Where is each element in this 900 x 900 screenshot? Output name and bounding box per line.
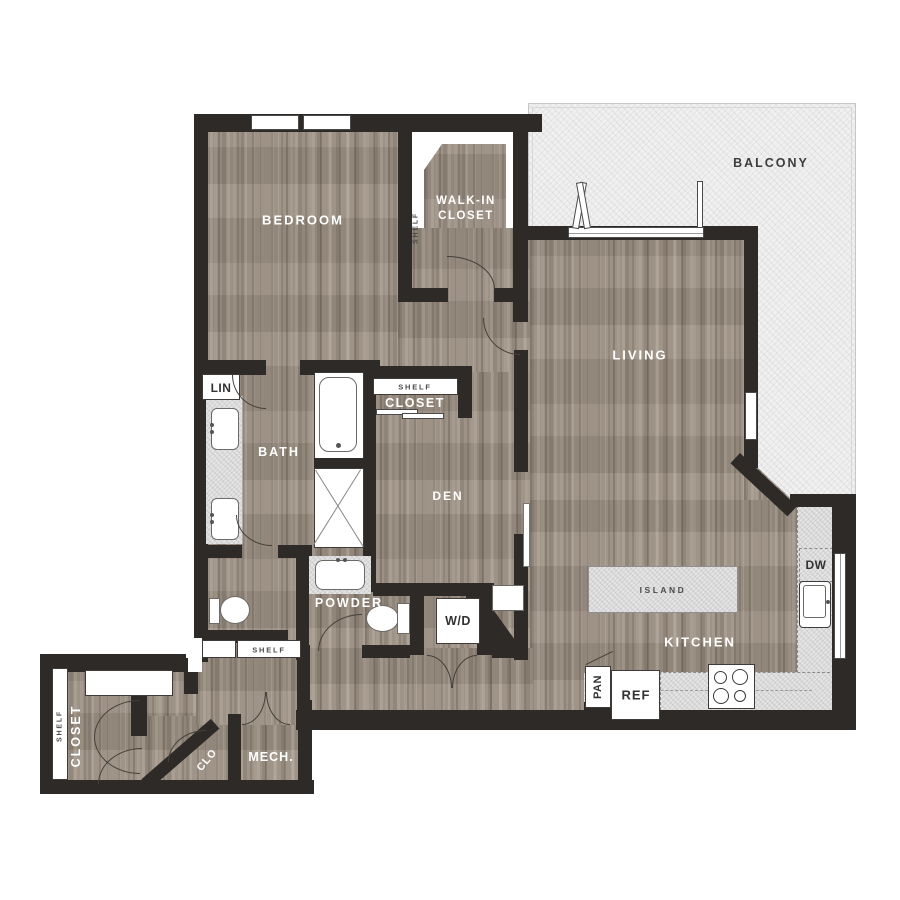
living-label: LIVING [612, 348, 667, 363]
counter-dash-divider [660, 672, 661, 710]
balcony-door-panel-c [697, 181, 703, 228]
powder-sink [315, 560, 365, 590]
wall-walkin-bottom-right [494, 288, 528, 302]
hallcloset-label: CLOSET [385, 396, 445, 410]
kitchen-window [834, 553, 846, 659]
kitchen-sink [799, 581, 831, 628]
wall-wd-left [410, 583, 424, 655]
refrigerator-label: REF [622, 688, 651, 703]
island-label: ISLAND [640, 585, 687, 595]
hallway-shelf-label: SHELF [252, 646, 286, 655]
wd-label: W/D [445, 614, 471, 628]
wall-powder-bottom-right [362, 645, 410, 658]
wingcloset-label: CLOSET [69, 705, 83, 768]
wall-mech-left [228, 714, 241, 784]
wall-bedroom-right [398, 126, 412, 302]
hall-opening-gap [188, 638, 202, 672]
kitchen-sink-basin [803, 585, 826, 618]
powder-label: POWDER [315, 596, 383, 610]
balcony-label: BALCONY [733, 156, 809, 170]
powder-sink-faucet [336, 558, 340, 562]
bath-sink-2 [211, 498, 239, 540]
wall-top [194, 114, 542, 132]
linen-label: LIN [211, 381, 232, 395]
floor-plan: BALCONY [0, 0, 900, 900]
kitchen-window-mullion [840, 554, 841, 658]
bathtub-drain [336, 443, 341, 448]
hallway-shelf-box-1 [202, 640, 236, 658]
bathtub [314, 372, 364, 460]
pantry-label: PAN [592, 675, 604, 699]
dw-label: DW [806, 558, 827, 572]
powder-sink-faucet2 [343, 558, 347, 562]
bath-sink-1-faucet2 [210, 430, 214, 434]
bath-sink-2-faucet [210, 513, 214, 517]
bedroom-window-1 [251, 115, 299, 130]
stove-burner-4 [734, 690, 746, 702]
wall-living-left-lower [514, 350, 528, 472]
wall-bottom [296, 710, 854, 730]
wingcloset-top-shelf [85, 670, 173, 696]
toilet-compartment-bowl [220, 596, 250, 624]
kitchen-sink-faucet [826, 600, 830, 604]
living-floor [530, 233, 746, 507]
bath-sink-1-faucet [210, 423, 214, 427]
den-cased-opening [523, 503, 530, 567]
bedroom-window-2 [303, 115, 351, 130]
counter-dash-corner [756, 690, 812, 691]
wall-wing-left [40, 654, 52, 794]
wall-walkin-bottom-left [398, 288, 448, 302]
living-window [745, 392, 757, 440]
bath-sink-2-faucet2 [210, 520, 214, 524]
balcony-slider [568, 227, 704, 238]
bathtub-basin [319, 377, 357, 452]
stove-burner-1 [714, 671, 727, 684]
entry-cabinet [492, 585, 524, 611]
hallcloset-bypass-door-2 [402, 413, 444, 419]
stove-burner-3 [713, 688, 729, 704]
wall-wing-bottom [40, 780, 314, 794]
wall-bed-bath-left [194, 360, 266, 375]
bath-sink-1 [211, 408, 239, 450]
bedroom-label: BEDROOM [262, 213, 344, 228]
wingcloset-shelf-label: SHELF [57, 710, 64, 742]
walkin-label-line1: WALK-IN [436, 195, 496, 207]
walkin-label-line2: CLOSET [438, 210, 494, 222]
toilet-compartment-tank [209, 598, 220, 624]
den-label: DEN [432, 489, 463, 503]
balcony-slider-track [569, 233, 703, 234]
wall-bath-bottom-left [194, 545, 242, 558]
stove-burner-2 [732, 669, 748, 685]
mech-label: MECH. [248, 750, 293, 764]
walkin-shelf-label: SHELF [413, 212, 420, 244]
hallcloset-shelf-label: SHELF [398, 383, 432, 392]
wall-hallcloset-right [458, 366, 472, 418]
powder-toilet-tank [397, 603, 410, 634]
kitchen-label: KITCHEN [664, 635, 736, 650]
wall-mech-right [298, 700, 312, 784]
bath-label: BATH [258, 445, 300, 459]
